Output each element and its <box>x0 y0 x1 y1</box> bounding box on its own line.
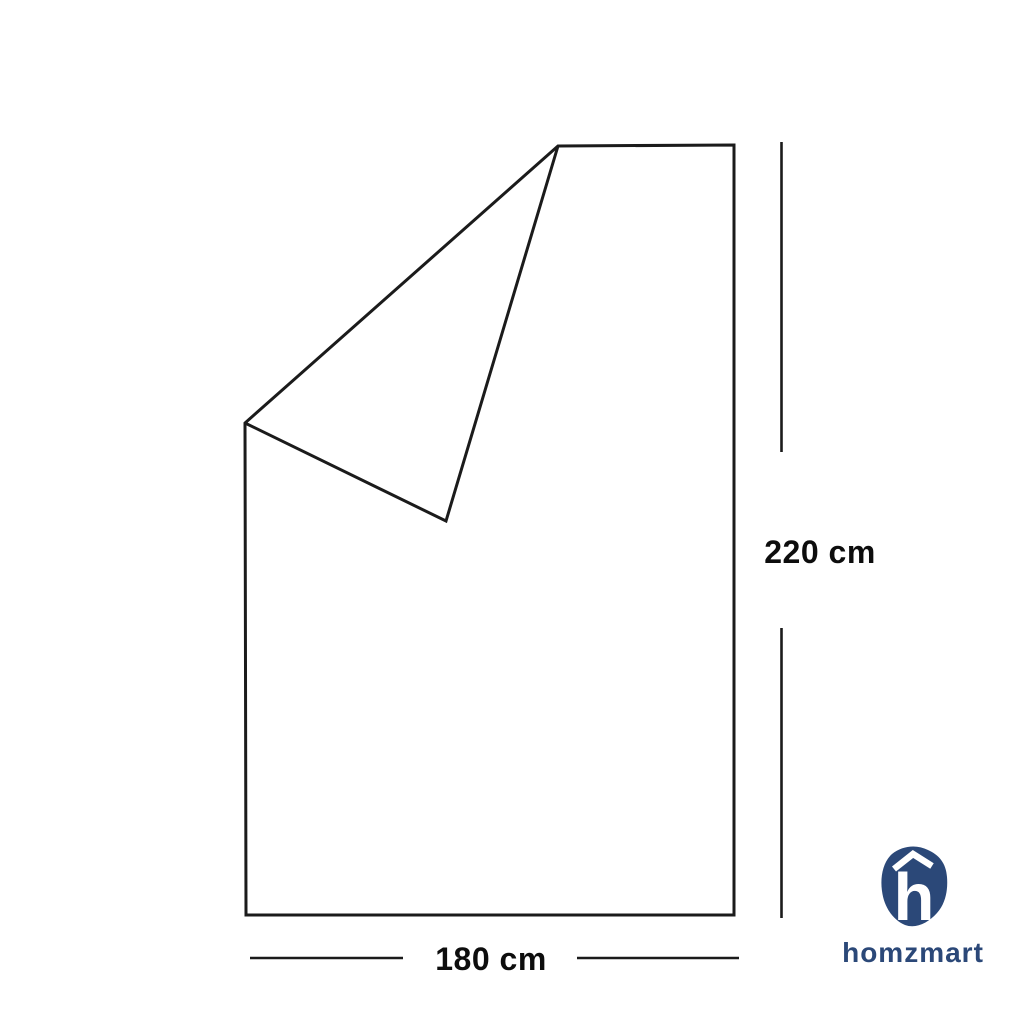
homzmart-h-icon: h <box>878 845 950 929</box>
product-dimension-diagram: 220 cm 180 cm h homzmart <box>0 0 1024 1024</box>
homzmart-wordmark: homzmart <box>830 938 996 968</box>
logo-letter-h: h <box>894 860 935 929</box>
homzmart-logo: h homzmart <box>828 845 1000 970</box>
height-dimension-label: 220 cm <box>750 534 890 570</box>
width-dimension-label: 180 cm <box>421 941 561 977</box>
blanket-outline <box>245 145 734 915</box>
